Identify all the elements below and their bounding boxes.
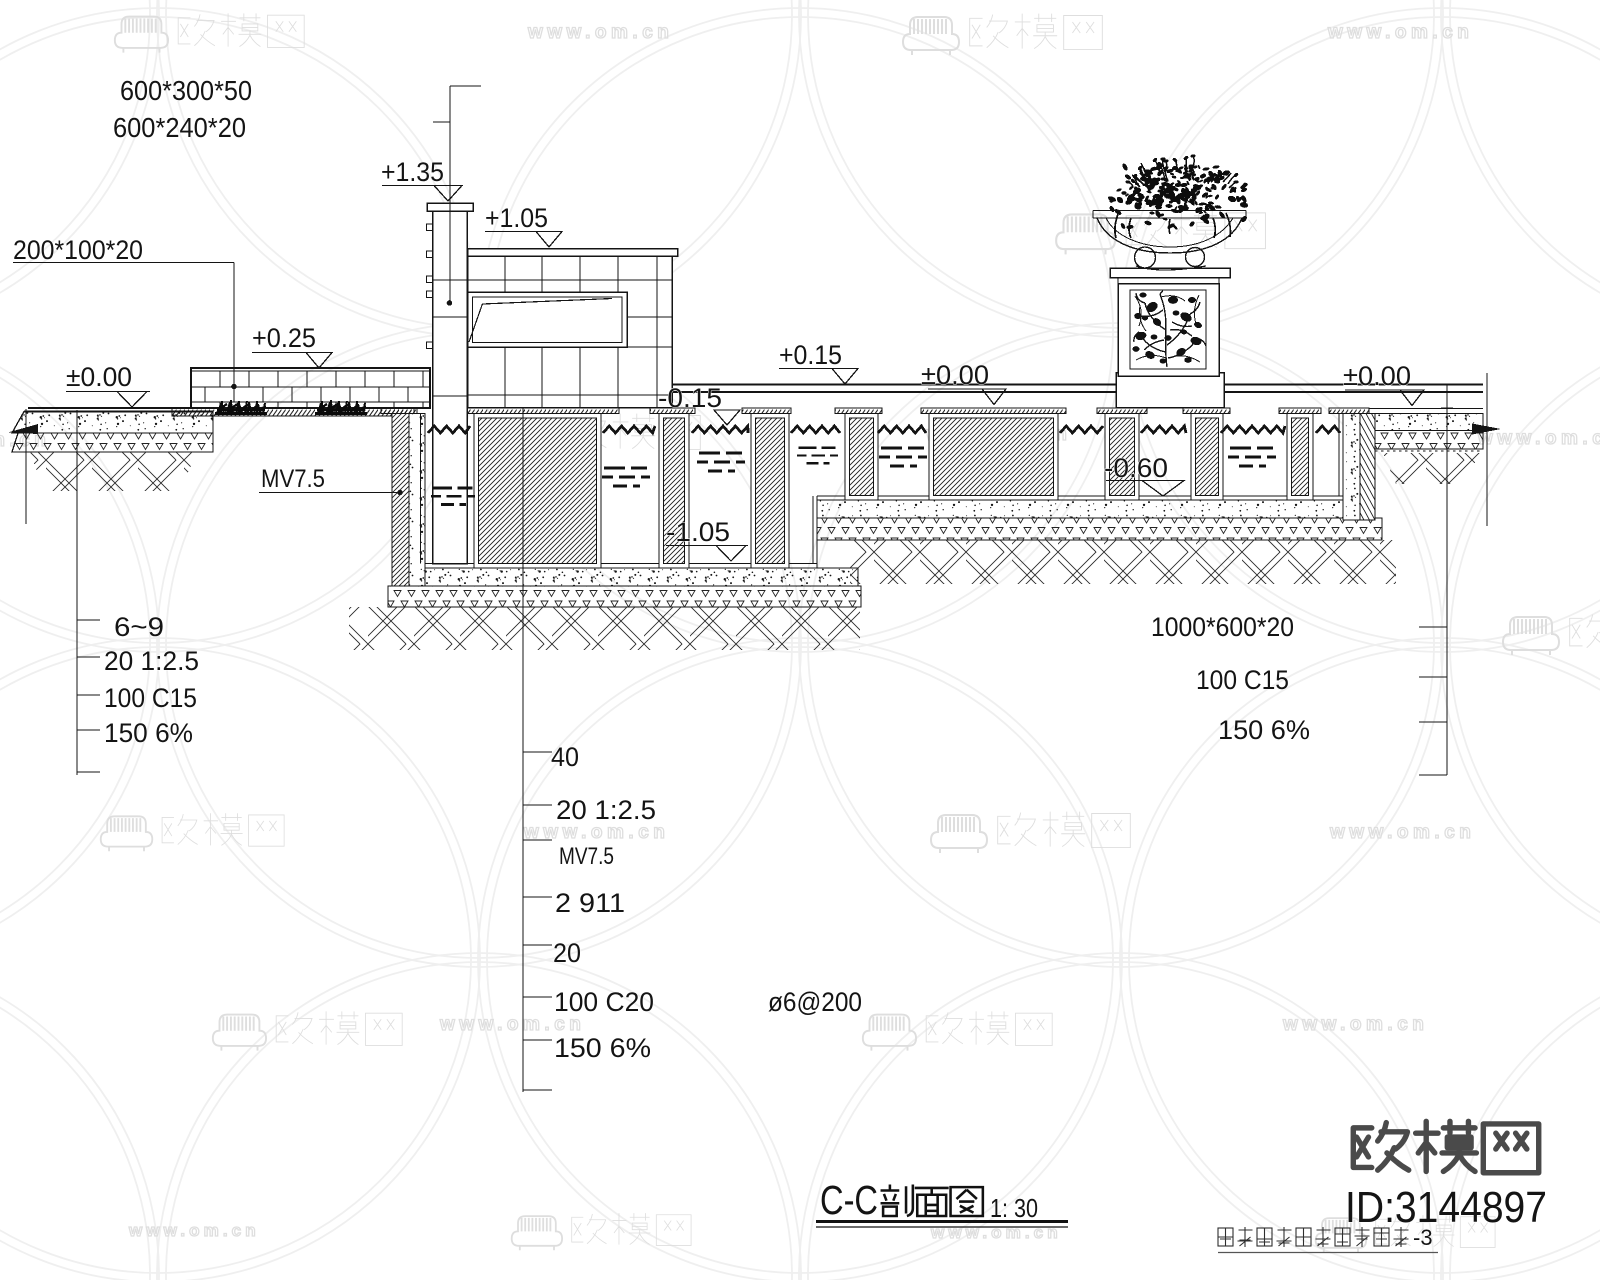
svg-text:±0.00: ±0.00 xyxy=(66,362,132,392)
svg-text:200*100*20: 200*100*20 xyxy=(13,235,143,265)
svg-text:20 1:2.5: 20 1:2.5 xyxy=(104,646,199,676)
svg-text:www.om.cn: www.om.cn xyxy=(1282,1014,1428,1035)
svg-text:+0.15: +0.15 xyxy=(779,340,842,370)
svg-text:100 C20: 100 C20 xyxy=(554,987,654,1017)
svg-text:www.om.cn: www.om.cn xyxy=(527,22,673,43)
svg-text:www.om.cn: www.om.cn xyxy=(1329,822,1475,843)
svg-text:150 6%: 150 6% xyxy=(554,1033,651,1063)
svg-text:40: 40 xyxy=(551,742,579,772)
svg-text:6~9: 6~9 xyxy=(114,612,164,642)
svg-text:100 C15: 100 C15 xyxy=(104,683,197,713)
svg-text:20: 20 xyxy=(553,938,581,968)
svg-text:www.om.cn: www.om.cn xyxy=(1327,22,1473,43)
svg-text:2 911: 2 911 xyxy=(555,888,625,918)
svg-text:-3: -3 xyxy=(1413,1225,1433,1250)
svg-text:MV7.5: MV7.5 xyxy=(559,843,614,870)
svg-text:MV7.5: MV7.5 xyxy=(261,465,325,493)
svg-text:+0.25: +0.25 xyxy=(252,323,316,353)
svg-text:+1.35: +1.35 xyxy=(381,157,444,187)
svg-text:C-C: C-C xyxy=(820,1177,878,1223)
svg-text:www.om.cn: www.om.cn xyxy=(930,1223,1062,1242)
svg-text:www.om.cn: www.om.cn xyxy=(128,1221,260,1240)
svg-text:www.om.cn: www.om.cn xyxy=(1477,428,1600,449)
svg-text:600*240*20: 600*240*20 xyxy=(113,112,246,143)
svg-text:100 C15: 100 C15 xyxy=(1196,665,1289,695)
svg-text:-0.60: -0.60 xyxy=(1104,453,1168,483)
svg-text:ø6@200: ø6@200 xyxy=(768,987,862,1017)
svg-text:www.om.cn: www.om.cn xyxy=(439,1014,585,1035)
svg-text:600*300*50: 600*300*50 xyxy=(120,75,252,106)
svg-text:1: 30: 1: 30 xyxy=(990,1193,1038,1223)
svg-text:150 6%: 150 6% xyxy=(104,718,193,748)
svg-text:±0.00: ±0.00 xyxy=(1343,361,1411,391)
svg-text:20 1:2.5: 20 1:2.5 xyxy=(556,795,656,825)
svg-text:-1.05: -1.05 xyxy=(666,517,730,547)
svg-text:-0.15: -0.15 xyxy=(658,383,722,413)
svg-text:150 6%: 150 6% xyxy=(1218,715,1310,745)
svg-text:ID:3144897: ID:3144897 xyxy=(1345,1183,1547,1232)
svg-text:+1.05: +1.05 xyxy=(485,203,548,233)
svg-text:1000*600*20: 1000*600*20 xyxy=(1151,612,1294,642)
svg-text:±0.00: ±0.00 xyxy=(921,360,989,390)
